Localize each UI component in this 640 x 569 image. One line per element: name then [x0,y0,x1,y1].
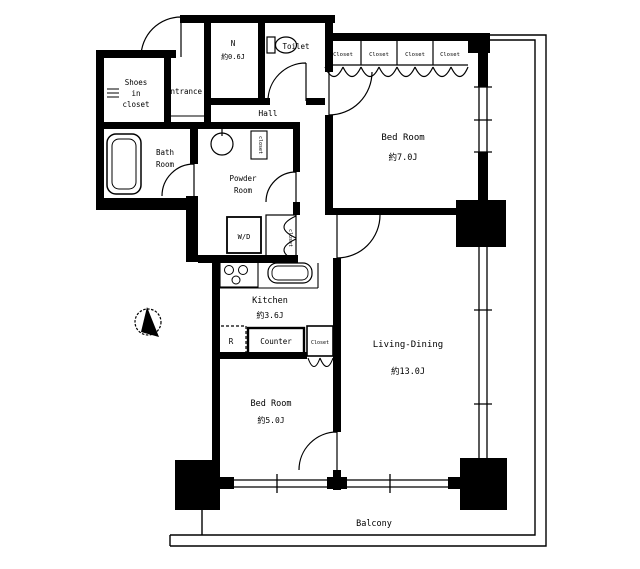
label-bath: Room [156,160,175,169]
wall-segment [96,198,198,210]
label-bedroom2: Bed Room [251,399,292,409]
bedroom1-door-arc [329,72,372,115]
label-bedroom1-size: 約7.0J [389,152,418,163]
wall-segment [325,15,333,72]
window-living-right [474,247,492,458]
bathtub-inner [112,139,136,189]
window-stub [327,477,347,489]
label-kitchen-closet: Closet [311,340,329,346]
window-stub [448,477,460,489]
pillar-right-middle [456,200,506,247]
label-balcony: Balcony [356,519,392,529]
wall-segment [306,98,325,105]
wall-segment [478,52,488,87]
windows [234,87,492,493]
wall-segment [258,23,265,98]
pillar-top-right [468,33,490,53]
wall-segment [204,23,211,122]
label-hall: Hall [258,109,277,118]
label-refrigerator: R [229,337,234,346]
window-bedroom2-bottom [234,474,327,493]
toilet-tank-icon [267,37,275,53]
label-storage-n: N [231,39,236,48]
label-closet-1: Closet [333,52,353,58]
label-shoes-closet: closet [122,100,149,109]
label-toilet: Toilet [282,42,309,51]
wall-segment [204,98,270,105]
label-closet-3: Closet [405,52,425,58]
wall-segment [212,255,220,465]
wall-segment [325,33,468,41]
label-powder: Room [234,186,253,195]
labels: Shoes in closet Entrance N 約0.6J Toilet … [122,39,459,529]
label-washer-dryer: W/D [238,233,251,241]
wall-segment [325,115,333,215]
stove-burner [239,266,248,275]
storage-boxes [216,131,333,367]
label-storage-n-size: 約0.6J [221,52,245,61]
label-kitchen-size: 約3.6J [256,310,283,320]
label-entrance: Entrance [166,87,203,96]
wall-segment [104,50,176,58]
label-counter: Counter [260,337,292,346]
wall-segment [180,15,335,23]
wall-segment [333,258,341,432]
label-hall-closet: closet [287,229,293,247]
toilet-door-arc [268,63,306,101]
stove-burner [232,276,240,284]
walls [96,15,488,490]
window-bedroom1-right [474,87,492,152]
kitchen-counter-edge [212,263,318,288]
wall-segment [478,152,488,200]
label-powder: Powder [229,174,257,183]
wall-segment [325,208,456,215]
window-stub [220,477,234,489]
wall-segment [293,202,300,215]
bedroom1-closet-row [325,41,468,77]
label-kitchen: Kitchen [252,296,288,306]
kitchen-sink-inner [272,266,308,280]
label-powder-closet: closet [257,136,263,154]
label-bedroom2-size: 約5.0J [257,415,284,425]
compass [135,307,161,337]
label-living-dining-size: 約13.0J [391,366,425,377]
shoes-shelf-marks [107,89,119,97]
label-living-dining: Living-Dining [373,340,443,350]
kitchen-closet-bifold [308,358,333,367]
wall-segment [190,122,198,164]
label-closet-2: Closet [369,52,389,58]
label-shoes-closet: in [131,89,140,98]
wall-segment [293,122,300,172]
label-closet-4: Closet [440,52,460,58]
label-bedroom1: Bed Room [381,133,424,143]
bedroom2-door-arc [299,432,337,470]
window-living-bottom [347,474,448,493]
pillar-bottom-left [175,460,220,510]
closet-bifold-doors [325,67,468,77]
label-bath: Bath [156,148,174,157]
floor-plan-canvas: Shoes in closet Entrance N 約0.6J Toilet … [0,0,640,569]
living-door-arc [337,215,380,258]
fixtures [107,37,318,288]
washbasin-icon [211,133,233,155]
floor-plan: Shoes in closet Entrance N 約0.6J Toilet … [0,0,640,569]
stove-burner [225,266,234,275]
powder-door-arc [266,172,296,202]
pillar-bottom-right [460,458,507,510]
label-shoes-closet: Shoes [125,78,148,87]
